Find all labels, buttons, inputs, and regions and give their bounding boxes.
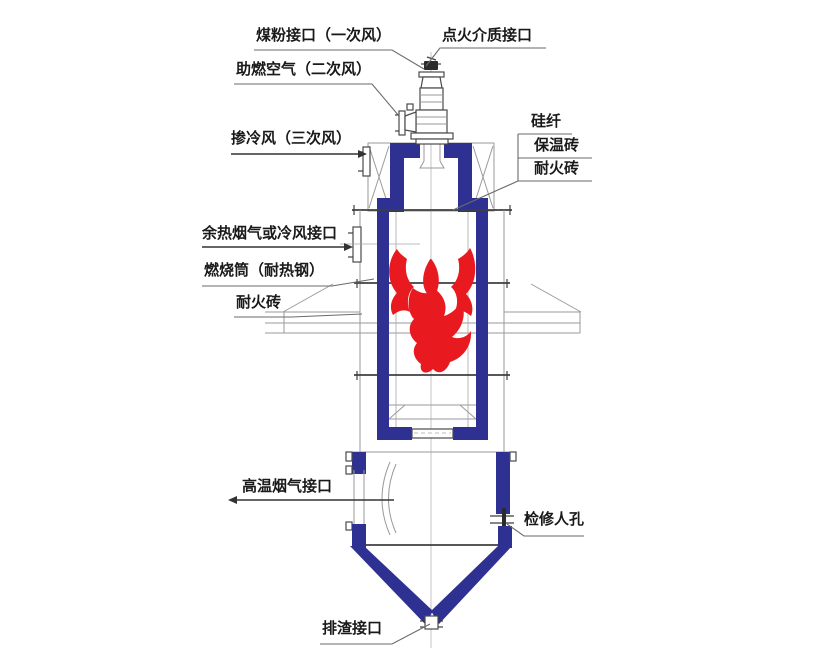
label-secondary-air: 助燃空气（二次风） <box>236 61 371 79</box>
label-refractory-brick-right: 耐火砖 <box>534 160 579 178</box>
label-slag-outlet: 排渣接口 <box>322 620 382 638</box>
label-tertiary-air: 掺冷风（三次风） <box>231 130 351 148</box>
upper-chamber <box>358 143 494 212</box>
label-refractory-brick-left: 耐火砖 <box>236 294 281 312</box>
secondary-air-pipe <box>395 104 416 135</box>
label-hot-flue-gas-outlet: 高温烟气接口 <box>242 478 332 496</box>
flame-logo <box>389 248 475 373</box>
burner-assembly <box>395 57 453 144</box>
label-inspection-manhole: 检修人孔 <box>524 511 584 529</box>
label-waste-heat-inlet: 余热烟气或冷风接口 <box>202 225 337 243</box>
flue-gas-arrow <box>228 496 237 504</box>
furnace-drawing <box>0 0 831 656</box>
label-ignition-medium: 点火介质接口 <box>442 27 532 45</box>
label-silica-fiber: 硅纤 <box>531 113 561 131</box>
furnace-structure-diagram: 煤粉接口（一次风） 点火介质接口 助燃空气（二次风） 掺冷风（三次风） 硅纤 保… <box>0 0 831 656</box>
label-insulation-brick: 保温砖 <box>534 137 579 155</box>
label-combustion-cylinder: 燃烧筒（耐热钢） <box>204 262 324 280</box>
label-coal-inlet: 煤粉接口（一次风） <box>256 27 391 45</box>
